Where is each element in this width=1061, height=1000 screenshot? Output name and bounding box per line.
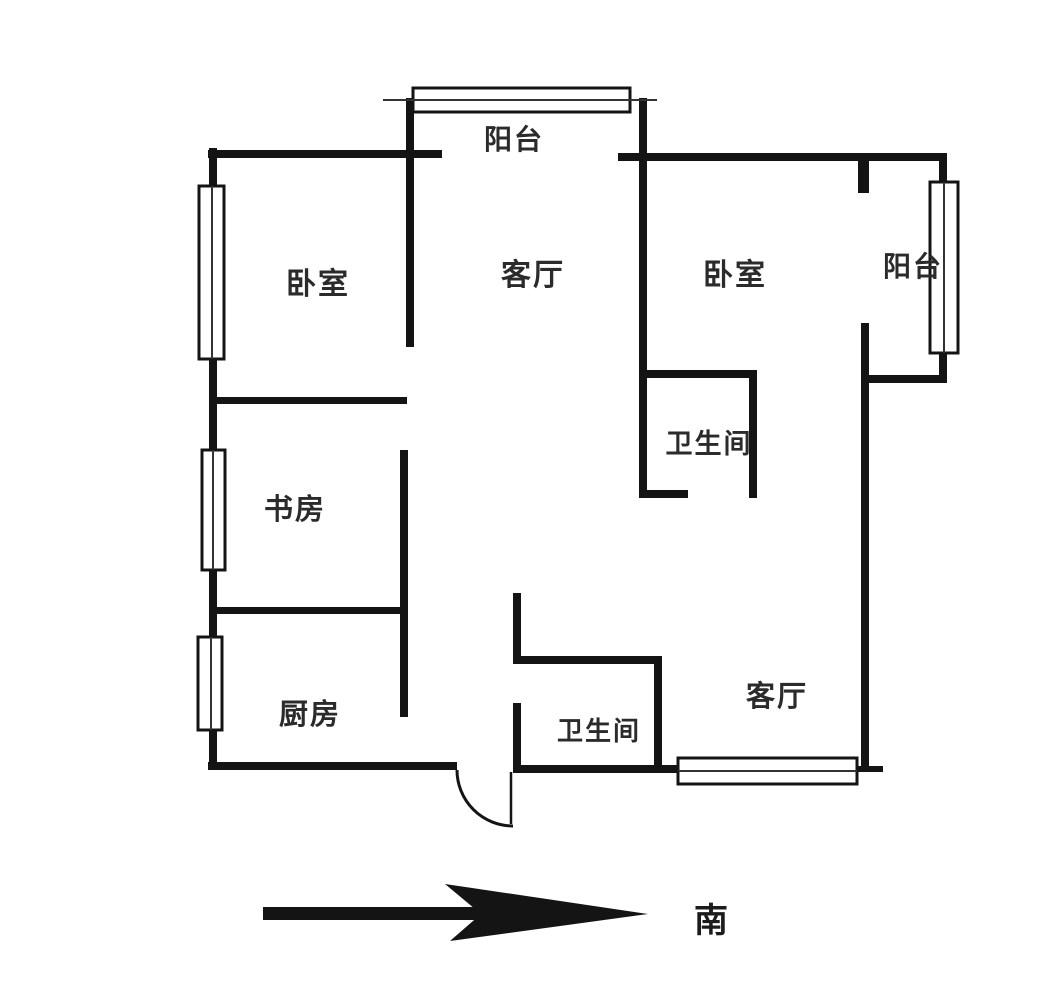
room-label-bathroom-bottom: 卫生间 bbox=[557, 716, 641, 746]
wall-segment bbox=[209, 568, 217, 640]
wall-segment bbox=[858, 153, 869, 193]
wall-segment bbox=[618, 153, 947, 161]
wall-segment bbox=[639, 98, 647, 490]
room-label-balcony-top: 阳台 bbox=[484, 123, 544, 155]
walls-group bbox=[208, 98, 947, 773]
entry-door-group bbox=[457, 770, 513, 826]
wall-segment bbox=[513, 593, 521, 663]
room-label-balcony-right: 阳台 bbox=[883, 250, 943, 282]
wall-segment bbox=[400, 450, 408, 717]
wall-segment bbox=[861, 375, 947, 383]
room-label-kitchen: 厨房 bbox=[279, 698, 341, 731]
wall-segment bbox=[209, 357, 217, 453]
labels-group: 卧室 客厅 卧室 阳台 阳台 卫生间 书房 厨房 卫生间 客厅 bbox=[264, 123, 943, 746]
south-arrow-shaft bbox=[263, 907, 488, 920]
compass-group: 南 bbox=[263, 884, 728, 941]
room-label-bedroom-left: 卧室 bbox=[286, 267, 350, 301]
wall-segment bbox=[209, 607, 405, 614]
wall-segment bbox=[406, 98, 414, 347]
wall-segment bbox=[654, 656, 662, 773]
wall-segment bbox=[939, 153, 947, 184]
south-label: 南 bbox=[694, 902, 728, 940]
wall-segment bbox=[861, 323, 869, 772]
floor-plan-page: 卧室 客厅 卧室 阳台 阳台 卫生间 书房 厨房 卫生间 客厅 南 bbox=[0, 0, 1061, 1000]
wall-segment bbox=[513, 703, 521, 773]
wall-segment bbox=[513, 765, 680, 773]
windows-group bbox=[198, 88, 958, 784]
room-label-study: 书房 bbox=[264, 493, 326, 526]
floorplan-svg: 卧室 客厅 卧室 阳台 阳台 卫生间 书房 厨房 卫生间 客厅 南 bbox=[0, 0, 1061, 1000]
room-label-living-room-top: 客厅 bbox=[501, 258, 565, 292]
wall-segment bbox=[209, 397, 407, 404]
wall-segment bbox=[639, 370, 757, 378]
room-label-bathroom-middle: 卫生间 bbox=[666, 429, 753, 459]
wall-segment bbox=[513, 656, 662, 664]
wall-segment bbox=[208, 762, 457, 770]
door-swing-arc bbox=[457, 770, 513, 826]
wall-segment bbox=[639, 490, 688, 498]
wall-segment bbox=[857, 766, 883, 772]
room-label-bedroom-right: 卧室 bbox=[703, 258, 767, 292]
room-label-living-room-bottom: 客厅 bbox=[746, 679, 808, 713]
